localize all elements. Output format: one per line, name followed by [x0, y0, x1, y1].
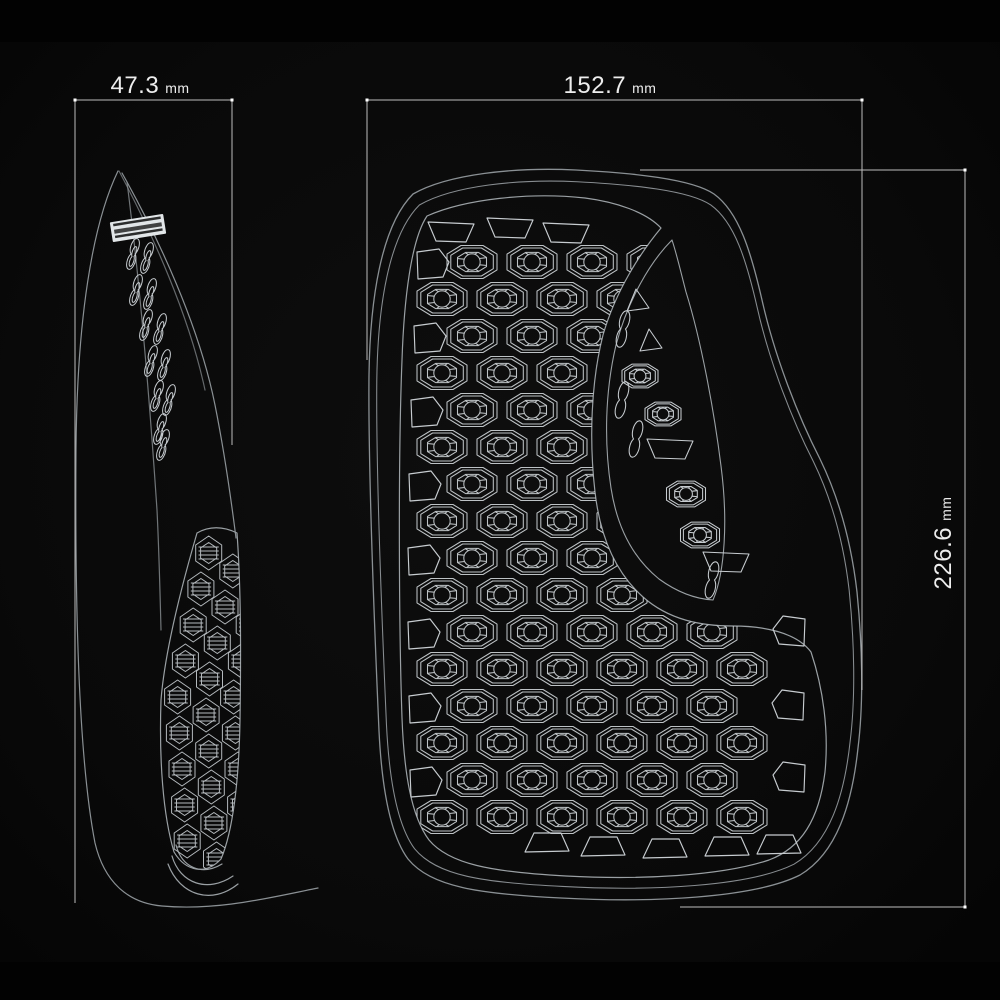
- background: [0, 0, 1000, 1000]
- drawing-svg: 47.3mm 152.7mm 226.6mm: [0, 0, 1000, 1000]
- letterbox-bottom: [0, 962, 1000, 1000]
- letterbox-top: [0, 0, 1000, 42]
- technical-drawing-canvas: 47.3mm 152.7mm 226.6mm: [0, 0, 1000, 1000]
